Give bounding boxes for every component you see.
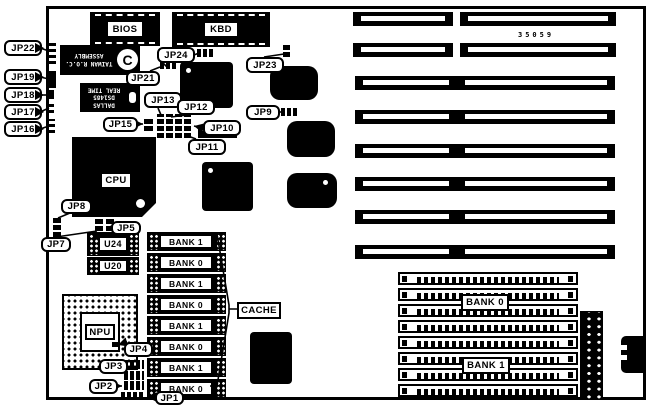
chipset-print: TAIWAN R.O.C. ASSEMBLY [62,52,116,67]
isa-slot-row7-short [355,210,457,224]
cache-chip-pins-right [215,317,225,334]
callout-jp9: JP9 [246,105,280,120]
u20-pins-right [128,258,138,274]
u20-label: U20 [98,259,128,273]
cache-chip-pins-left [148,359,158,376]
callout-jp11: JP11 [188,139,226,155]
qfp-chip-6 [250,332,292,384]
board-part-number: 35059 [518,31,554,39]
qfp-pin1-dot [208,168,213,173]
u20-chip: U20 [87,257,139,275]
callout-jp10: JP10 [203,120,241,136]
bios-rom-chip: BIOS [90,12,160,46]
callout-jp12: JP12 [177,99,215,115]
callout-jp17: JP17 [4,104,42,120]
jumper-pins-h-5 [124,371,144,380]
isa-slot-row1-short [353,12,453,26]
jumper-pins-v-7 [53,217,61,237]
power-connector [580,311,603,400]
kbd-label: KBD [203,21,239,38]
keyboard-controller-chip: KBD [172,12,270,47]
qfp-chip-5 [287,173,337,208]
isa-slot-row3-long [457,76,615,90]
cpu-pin1-dot [136,199,145,208]
jumper-pins-h-6 [124,381,144,390]
isa-slot-row2-short [353,43,453,57]
isa-slot-row2-long [460,43,616,57]
callout-jp18: JP18 [4,87,42,103]
isa-slot-row8-short [355,245,457,259]
kbd-pin-dashes-top [177,14,265,16]
jumper-pins-h-7 [121,392,145,400]
jumper-pins-h-2 [160,62,176,69]
npu-label: NPU [85,324,115,340]
cache-chip-pins-left [148,233,158,250]
cache-bank-label: BANK 1 [160,361,212,374]
bios-pin-dashes-top [95,14,155,16]
isa-slot-row6-long [457,177,615,191]
cache-sram-chip-6: BANK 0 [147,337,226,356]
callout-jp7: JP7 [41,237,71,252]
rtc-chip: DALLAS DS1485 REAL TIME [80,83,140,112]
simm-bank0-label: BANK 0 [461,294,509,311]
keyboard-din-connector [621,336,646,373]
jumper-pins-h-3 [281,108,298,116]
callout-jp16: JP16 [4,121,42,137]
chipset-print-line2: ASSEMBLY [62,52,116,60]
cache-bank-label: BANK 1 [160,277,212,290]
rtc-logo-icon [129,92,136,103]
cache-sram-chip-2: BANK 0 [147,253,226,272]
jumper-pins-v-1 [144,117,153,131]
qfp-chip-3 [287,121,335,157]
isa-slot-row5-long [457,144,615,158]
cache-chip-pins-right [215,359,225,376]
cache-chip-pins-left [148,254,158,271]
isa-slot-row5-short [355,144,457,158]
simm-socket-8 [398,384,578,397]
callout-jp2: JP2 [89,379,118,394]
callout-jp24: JP24 [157,47,195,63]
cache-chip-pins-right [215,380,225,397]
cache-label: CACHE [237,302,281,319]
bios-label: BIOS [106,20,144,38]
cache-bank-label: BANK 1 [160,235,212,248]
isa-slot-row1-long [460,12,616,26]
u24-label: U24 [98,236,128,252]
simm-bank1-label: BANK 1 [462,357,510,374]
chipset-print-line1: TAIWAN R.O.C. [62,60,116,68]
cache-chip-pins-right [215,254,225,271]
chipset-logo-icon: C [117,49,138,70]
callout-jp4: JP4 [124,342,153,357]
qfp-chip-4 [202,162,253,211]
jumper-pins-v-3 [166,114,173,138]
motherboard-diagram: BIOS KBD TAIWAN R.O.C. ASSEMBLY C DALLAS… [0,0,651,408]
callout-jp21: JP21 [126,71,160,86]
cache-sram-chip-4: BANK 0 [147,295,226,314]
qfp-pin1-dot [323,180,328,185]
cache-bank-label: BANK 1 [160,319,212,332]
callout-jp5: JP5 [111,221,141,235]
cpu-label: CPU [100,172,132,189]
cache-chip-pins-right [215,275,225,292]
jumper-pins-h-1 [197,49,213,57]
rtc-print-line2: DS1485 [82,94,126,102]
isa-slot-row8-long [457,245,615,259]
callout-jp15: JP15 [103,117,138,132]
npu-socket: NPU [62,294,138,370]
jumper-pins-v-6 [283,43,290,57]
cache-chip-pins-left [148,317,158,334]
rtc-print: DALLAS DS1485 REAL TIME [82,86,126,109]
rtc-print-line3: REAL TIME [82,86,126,94]
callout-jp19: JP19 [4,69,42,85]
isa-slot-row7-long [457,210,615,224]
jumper-pins-v-5 [184,114,191,138]
callout-jp3: JP3 [99,359,128,374]
jumper-pins-v-4 [175,114,182,138]
callout-jp23: JP23 [246,57,284,73]
cache-bank-label: BANK 0 [160,298,212,311]
callout-jp8: JP8 [61,199,92,214]
bios-pin-dashes-bottom [95,42,155,44]
cache-chip-pins-left [148,296,158,313]
u20-pins-left [88,258,98,274]
isa-slot-row3-short [355,76,457,90]
cache-chip-pins-right [215,233,225,250]
simm-socket-1 [398,272,578,285]
isa-slot-row4-long [457,110,615,124]
rtc-print-line1: DALLAS [82,101,126,109]
cache-sram-chip-3: BANK 1 [147,274,226,293]
jumper-pins-v-8 [95,218,103,238]
cache-sram-chip-7: BANK 1 [147,358,226,377]
simm-socket-4 [398,320,578,333]
cache-chip-pins-right [215,338,225,355]
u24-pins-right [128,233,138,255]
callout-jp22: JP22 [4,40,42,56]
isa-slot-row4-short [355,110,457,124]
callout-jp1: JP1 [155,391,184,405]
cache-bank-label: BANK 0 [160,340,212,353]
cache-sram-chip-5: BANK 1 [147,316,226,335]
cache-chip-pins-left [148,275,158,292]
cache-bank-label: BANK 0 [160,256,212,269]
simm-socket-5 [398,336,578,349]
isa-slot-row6-short [355,177,457,191]
chipset-chip: TAIWAN R.O.C. ASSEMBLY C [60,45,140,75]
jumper-pins-v-10 [112,341,119,347]
jumper-pins-v-2 [157,114,164,138]
kbd-pin-dashes-bottom [177,43,265,45]
qfp-pin1-dot [186,68,191,73]
cache-chip-pins-right [215,296,225,313]
cache-sram-chip-1: BANK 1 [147,232,226,251]
